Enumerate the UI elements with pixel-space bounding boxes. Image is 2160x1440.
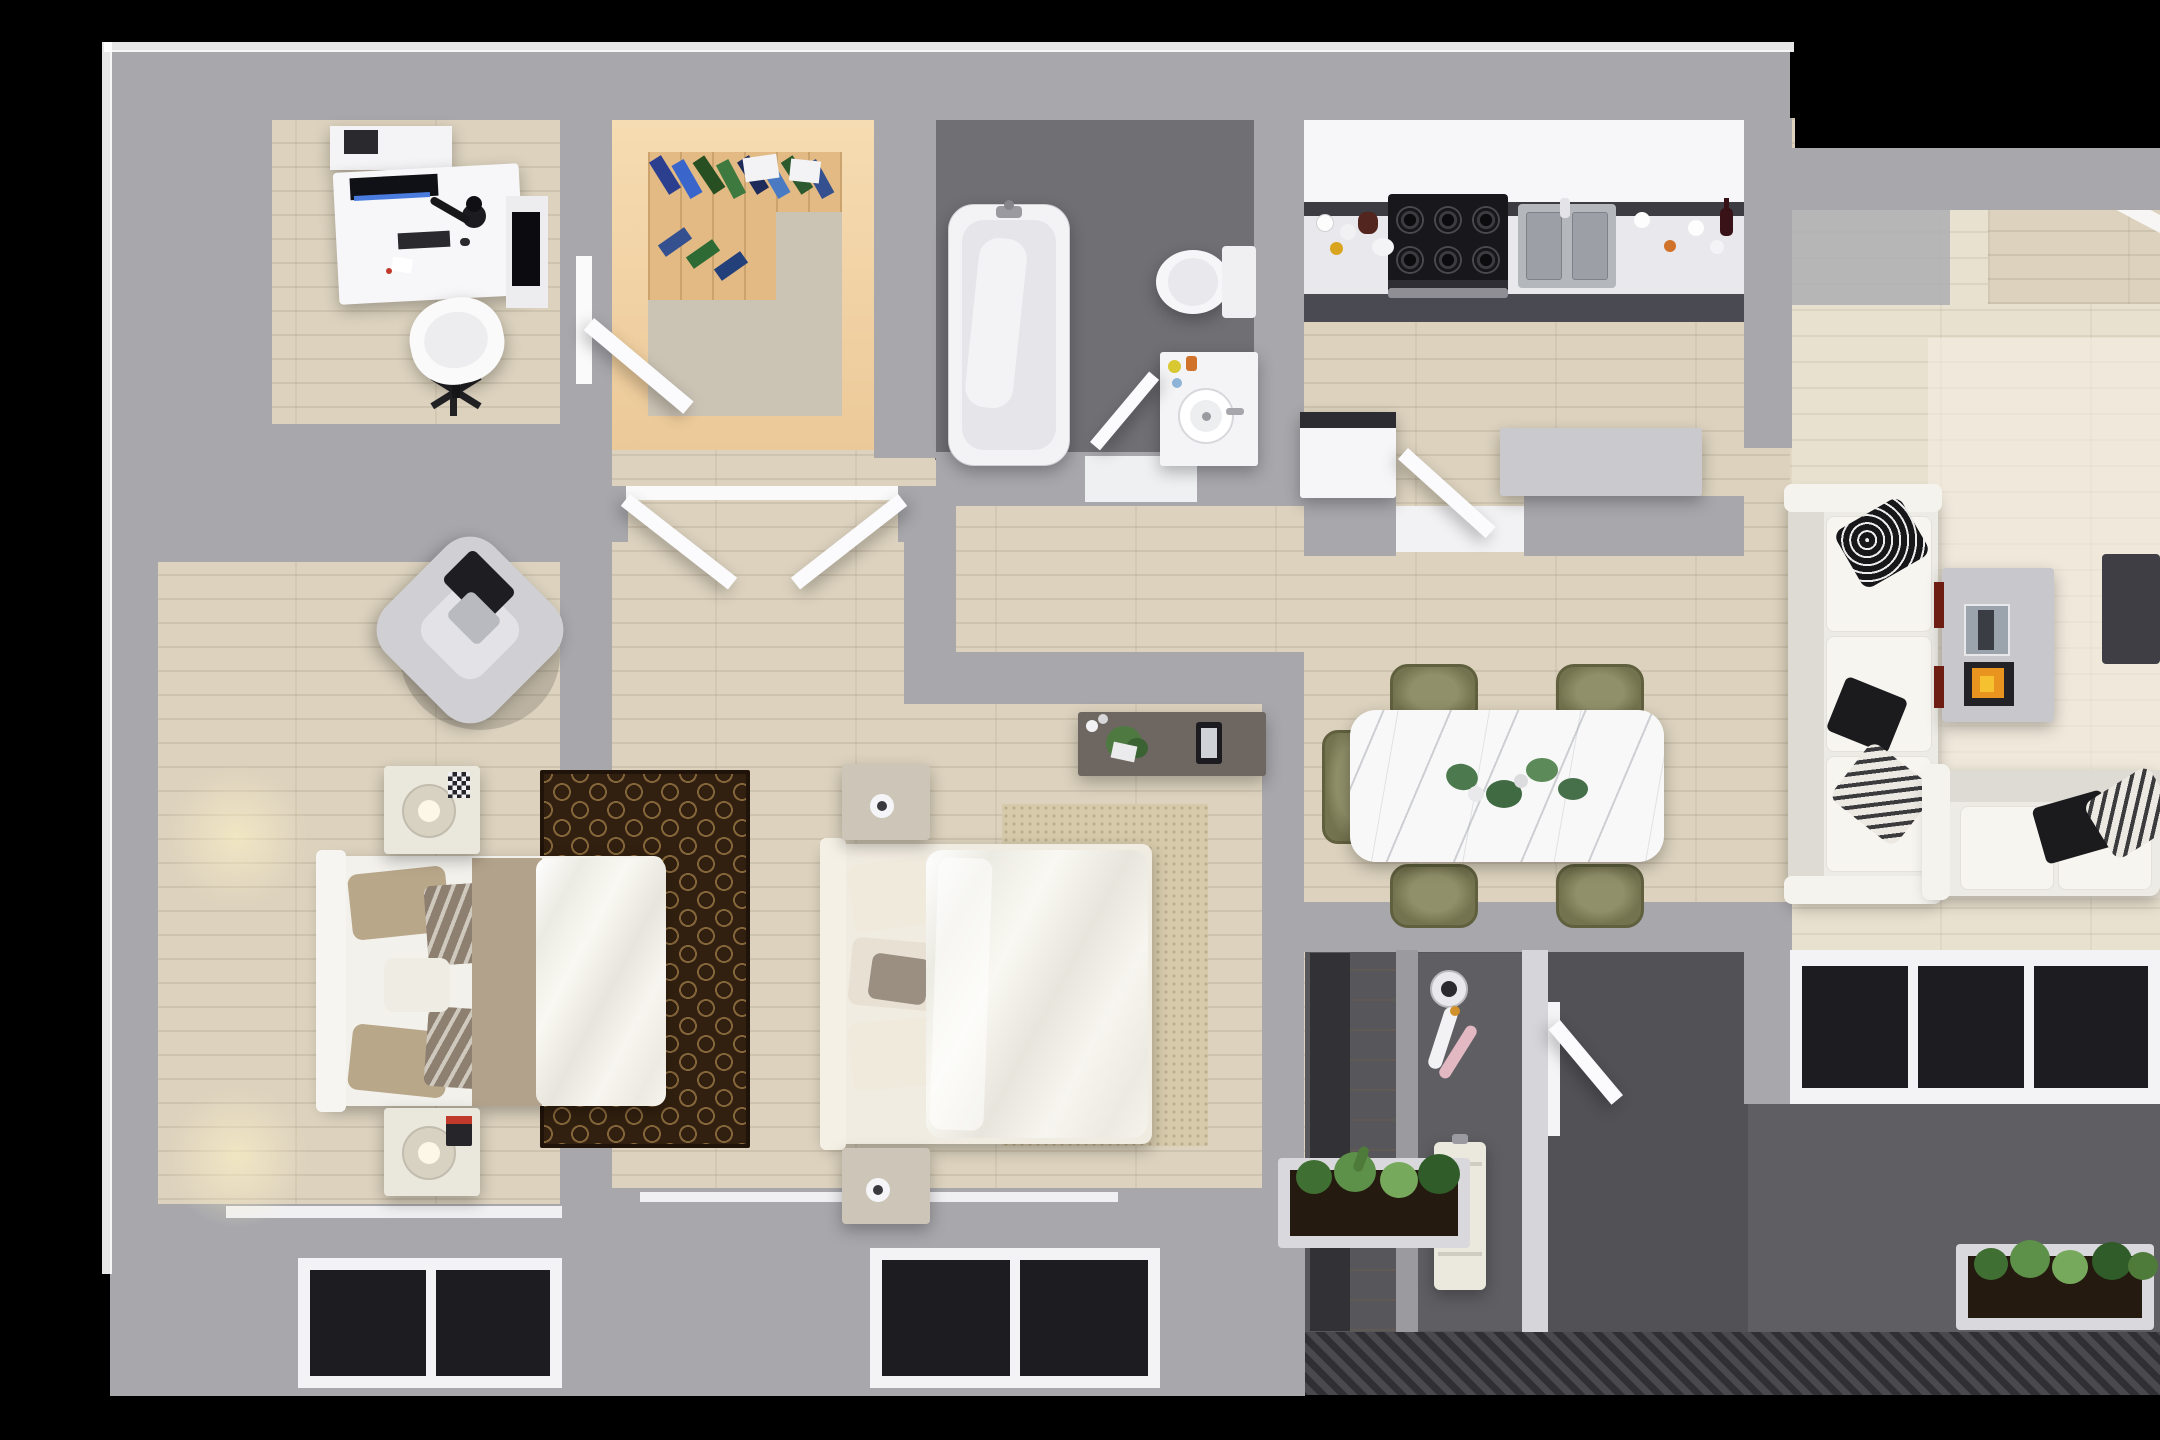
living-ceiling-shadow <box>1790 205 1950 305</box>
lamp-glow-top <box>162 762 312 912</box>
toilet-seat <box>1168 258 1218 306</box>
office-printer <box>344 130 378 154</box>
lamp-glow-bottom <box>162 1082 312 1232</box>
planter-2-plant-4 <box>2092 1242 2132 1280</box>
bathtub-knob <box>1004 200 1014 210</box>
dining-chair-bottom-2 <box>1556 864 1644 928</box>
wall-kitchen-south-a <box>1304 496 1396 556</box>
burner-4 <box>1396 246 1424 274</box>
console-picture-figure <box>1978 610 1994 650</box>
utility-closet-floor <box>1310 953 1350 1331</box>
kitchen-sink-basin-1 <box>1526 212 1562 280</box>
closet-box-2 <box>789 158 821 183</box>
bed1-pillow-white <box>384 958 450 1012</box>
dresser-cup-1 <box>1086 720 1098 732</box>
bed2-pillow-accent <box>867 952 931 1006</box>
bedroom1-window-pane-left <box>310 1270 426 1376</box>
burner-5 <box>1434 246 1462 274</box>
planter-1-plant-3 <box>1380 1162 1418 1198</box>
nightstand1-deco <box>448 772 470 798</box>
dresser-cup-2 <box>1098 714 1108 724</box>
burner-2 <box>1434 206 1462 234</box>
kitchen-upper-cabinets <box>1300 118 1746 202</box>
sofa-vertical-back <box>1788 490 1824 902</box>
lamp1-shade <box>418 800 440 822</box>
kitchen-peninsula <box>1500 428 1702 496</box>
nightstand1-book-stripe <box>446 1116 472 1124</box>
counter-jar-yellow <box>1330 242 1343 255</box>
counter-wine-neck <box>1724 198 1729 210</box>
planter-1-plant-1 <box>1296 1160 1332 1194</box>
bed1-duvet <box>536 858 666 1106</box>
tv-console-accent-2 <box>1934 666 1944 708</box>
bed1-headboard <box>316 850 346 1112</box>
counter-moka-pot <box>1358 212 1378 234</box>
burner-3 <box>1472 206 1500 234</box>
counter-cup-2 <box>1634 212 1650 228</box>
lamp2-shade <box>418 1142 440 1164</box>
burner-6 <box>1472 246 1500 274</box>
bed2-headboard <box>820 838 846 1150</box>
oven-front <box>1388 280 1508 288</box>
counter-saucer <box>1340 224 1356 240</box>
bedroom2-window-pane-right <box>1020 1260 1148 1376</box>
planter-2-plant-5 <box>2128 1252 2158 1280</box>
desk-mic <box>466 196 482 212</box>
living-window-pane-2 <box>1918 966 2024 1088</box>
wall-utility-divider <box>1396 950 1418 1332</box>
vanity-bottle-yellow <box>1168 360 1181 373</box>
centerpiece-vase-1 <box>1468 786 1484 802</box>
wall-top <box>110 50 1790 120</box>
wall-bed2-north <box>956 652 1304 704</box>
bed1-blanket <box>472 858 542 1106</box>
toilet-tank <box>1222 246 1256 318</box>
oven-handle <box>1388 288 1508 298</box>
desk-paper <box>391 257 413 274</box>
wall-kitchen-east <box>1744 118 1792 448</box>
bedroom2-window-pane-left <box>882 1260 1010 1376</box>
planter-2-plant-2 <box>2010 1240 2050 1278</box>
utility-closet-door <box>1350 953 1396 1331</box>
counter-kettle <box>1372 238 1394 256</box>
wall-closet-bath <box>874 118 936 458</box>
bed2-door-sill <box>626 486 898 500</box>
wall-bed2-jog <box>904 486 956 704</box>
wall-entry-west <box>1522 950 1548 1332</box>
tv-console-accent-1 <box>1934 582 1944 628</box>
bedroom1-window-pane-right <box>436 1270 550 1376</box>
burner-1 <box>1396 206 1424 234</box>
window-sill-top-right <box>1988 206 2160 304</box>
outer-edge-top <box>104 42 1794 52</box>
desk-mouse <box>460 238 470 246</box>
planter-2-plant-1 <box>1974 1248 2008 1280</box>
wall-kitchen-south-b <box>1524 496 1744 556</box>
counter-jar-orange <box>1664 240 1676 252</box>
desk-keyboard <box>398 231 451 250</box>
planter-2-plant-3 <box>2052 1250 2088 1284</box>
sofa-vertical-arm-bottom <box>1784 876 1942 904</box>
living-window-pane-3 <box>2034 966 2148 1088</box>
centerpiece-greens-4 <box>1558 778 1588 800</box>
nightstand2-top-cup-in <box>877 801 887 811</box>
kitchen-island-top <box>1300 412 1396 428</box>
dresser-tablet-screen <box>1201 728 1217 758</box>
counter-cup-1 <box>1316 214 1334 232</box>
vacuum-eye <box>1441 981 1457 997</box>
water-heater-valve <box>1452 1134 1468 1144</box>
living-side-table <box>2102 554 2160 664</box>
console-fire-core <box>1980 676 1994 692</box>
wall-dining-south <box>1262 902 1790 952</box>
office-pc-screen <box>512 212 540 286</box>
dining-chair-bottom-1 <box>1390 864 1478 928</box>
water-heater-seam-2 <box>1438 1252 1482 1256</box>
vanity-drain <box>1202 412 1211 421</box>
counter-wine-bottle <box>1720 208 1733 236</box>
planter-1-plant-4 <box>1418 1154 1460 1194</box>
living-window-pane-1 <box>1802 966 1908 1088</box>
sofa-horizontal-arm-left <box>1922 764 1950 900</box>
vacuum-dot <box>1450 1006 1460 1016</box>
counter-cup-4 <box>1710 240 1724 254</box>
wall-bath-east <box>1254 118 1304 458</box>
centerpiece-vase-2 <box>1514 774 1528 788</box>
wall-office-south <box>110 424 562 562</box>
vanity-soap <box>1172 378 1182 388</box>
kitchen-faucet <box>1560 198 1570 218</box>
kitchen-sink-basin-2 <box>1572 212 1608 280</box>
apartment-floor-plan-render <box>0 0 2160 1440</box>
counter-cup-3 <box>1688 220 1704 236</box>
wall-living-west-low <box>1744 902 1792 1104</box>
sofa-vertical-arm-top <box>1784 484 1942 512</box>
wall-living-top <box>1790 148 2160 210</box>
kitchen-lower-cabinets <box>1300 294 1746 322</box>
desk-red-dot <box>386 268 392 274</box>
vanity-bottle-orange <box>1186 356 1197 371</box>
balcony-decking <box>1160 1332 2160 1395</box>
outer-edge-left <box>102 42 112 1274</box>
entry-floor <box>1548 950 1748 1395</box>
bed2-duvet-fold <box>929 857 992 1131</box>
centerpiece-greens-3 <box>1526 758 1558 782</box>
office-door-threshold <box>576 256 592 384</box>
wall-left-lower <box>110 560 158 1210</box>
vanity-faucet <box>1226 408 1244 415</box>
closet-box-1 <box>742 154 779 182</box>
nightstand2-bottom-cup-in <box>873 1185 883 1195</box>
